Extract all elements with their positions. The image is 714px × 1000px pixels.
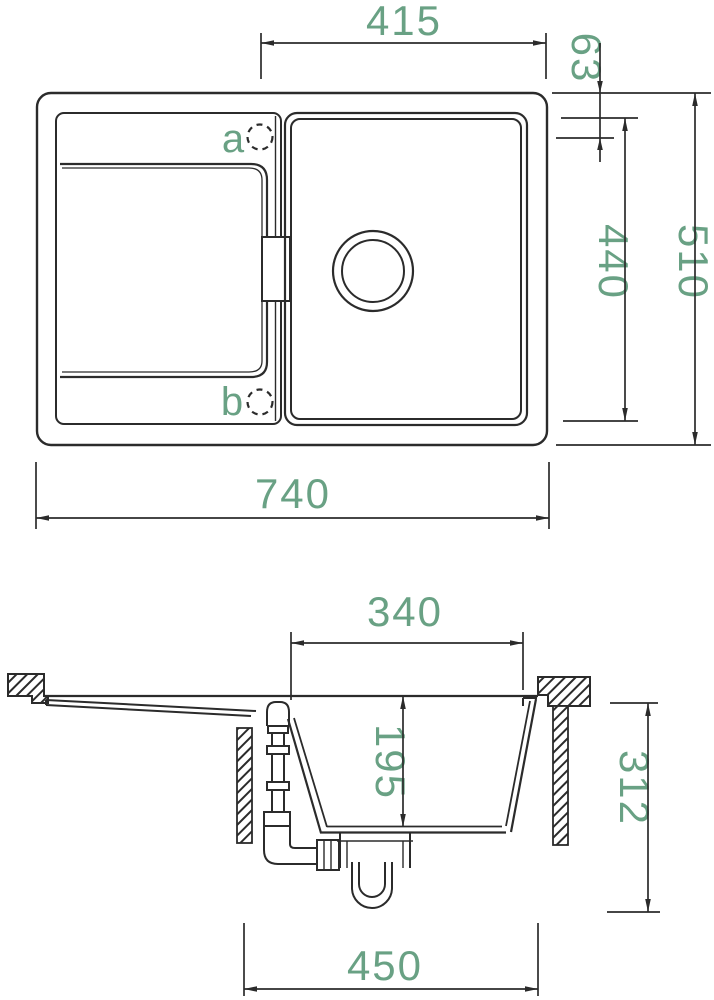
dim-312-label: 312 <box>611 750 658 826</box>
dim-195-label: 195 <box>367 724 414 800</box>
overflow-pipe-assembly <box>264 702 339 870</box>
top-view: 415 63 <box>36 0 714 529</box>
drainboard-bowl-inner <box>62 168 262 372</box>
dimension-bowl-length: 440 <box>561 118 638 421</box>
overflow-band-1 <box>267 746 289 754</box>
tap-hole-b-circle <box>248 390 273 415</box>
dim-340-label: 340 <box>367 588 443 635</box>
dim-450-label: 450 <box>347 942 423 989</box>
drainboard-section <box>46 700 256 716</box>
dim-63-label: 63 <box>563 33 610 84</box>
basin-left-wall-inner <box>294 718 327 827</box>
drainboard-bowl-outer <box>60 164 267 377</box>
countertop-left-section <box>8 674 48 703</box>
dimension-overall-height: 312 <box>607 703 660 912</box>
dim-510-label: 510 <box>670 224 714 300</box>
dimension-hole-offset: 63 <box>556 33 614 162</box>
drainboard-bottom-line <box>46 705 251 716</box>
cutout-edge-left <box>237 728 252 843</box>
drainboard-area <box>60 164 267 377</box>
dimension-overall-width: 740 <box>36 462 549 529</box>
dim-63-arrow-down <box>597 81 603 93</box>
overflow-band-2 <box>267 782 289 790</box>
tap-hole-a-circle <box>248 125 273 150</box>
drain-inner-circle <box>342 240 404 302</box>
dim-440-label: 440 <box>590 224 637 300</box>
overflow-coupling-top <box>268 726 288 733</box>
basin-outer-edge <box>285 113 527 425</box>
dim-740-label: 740 <box>255 470 331 517</box>
trap-inner <box>359 862 385 897</box>
section-view: 340 <box>8 588 660 996</box>
dim-415-label: 415 <box>366 0 442 44</box>
dimension-bowl-depth: 195 <box>367 696 414 827</box>
dimension-bowl-width: 340 <box>291 588 523 700</box>
tap-hole-a-label: a <box>222 117 245 161</box>
overflow-coupling-bottom <box>264 812 290 826</box>
dim-63-arrow-up <box>597 138 603 150</box>
tap-hole-b: b <box>221 380 273 424</box>
drainboard-top-line <box>46 700 256 711</box>
basin-inner-edge <box>291 119 521 419</box>
basin-right-wall-inner <box>506 701 530 826</box>
overflow-inlet <box>267 702 289 726</box>
sink-drawing-canvas: 415 63 <box>0 0 714 1000</box>
basin-area <box>285 113 527 425</box>
drain-outer-circle <box>333 231 413 311</box>
drain-trap-assembly <box>337 833 413 908</box>
basin-left-wall-outer <box>288 719 321 833</box>
tap-hole-b-label: b <box>221 380 243 424</box>
dimension-basin-width: 415 <box>261 0 546 79</box>
basin-right-wall-outer <box>511 699 536 832</box>
drain-nut <box>317 840 339 870</box>
countertop-right-section <box>538 677 590 706</box>
cutout-edge-right <box>553 706 568 845</box>
technical-drawing-page: 415 63 <box>0 0 714 1000</box>
dimension-cutout-width: 450 <box>244 923 538 996</box>
elbow-inner <box>290 826 318 848</box>
tap-hole-a: a <box>222 117 273 161</box>
